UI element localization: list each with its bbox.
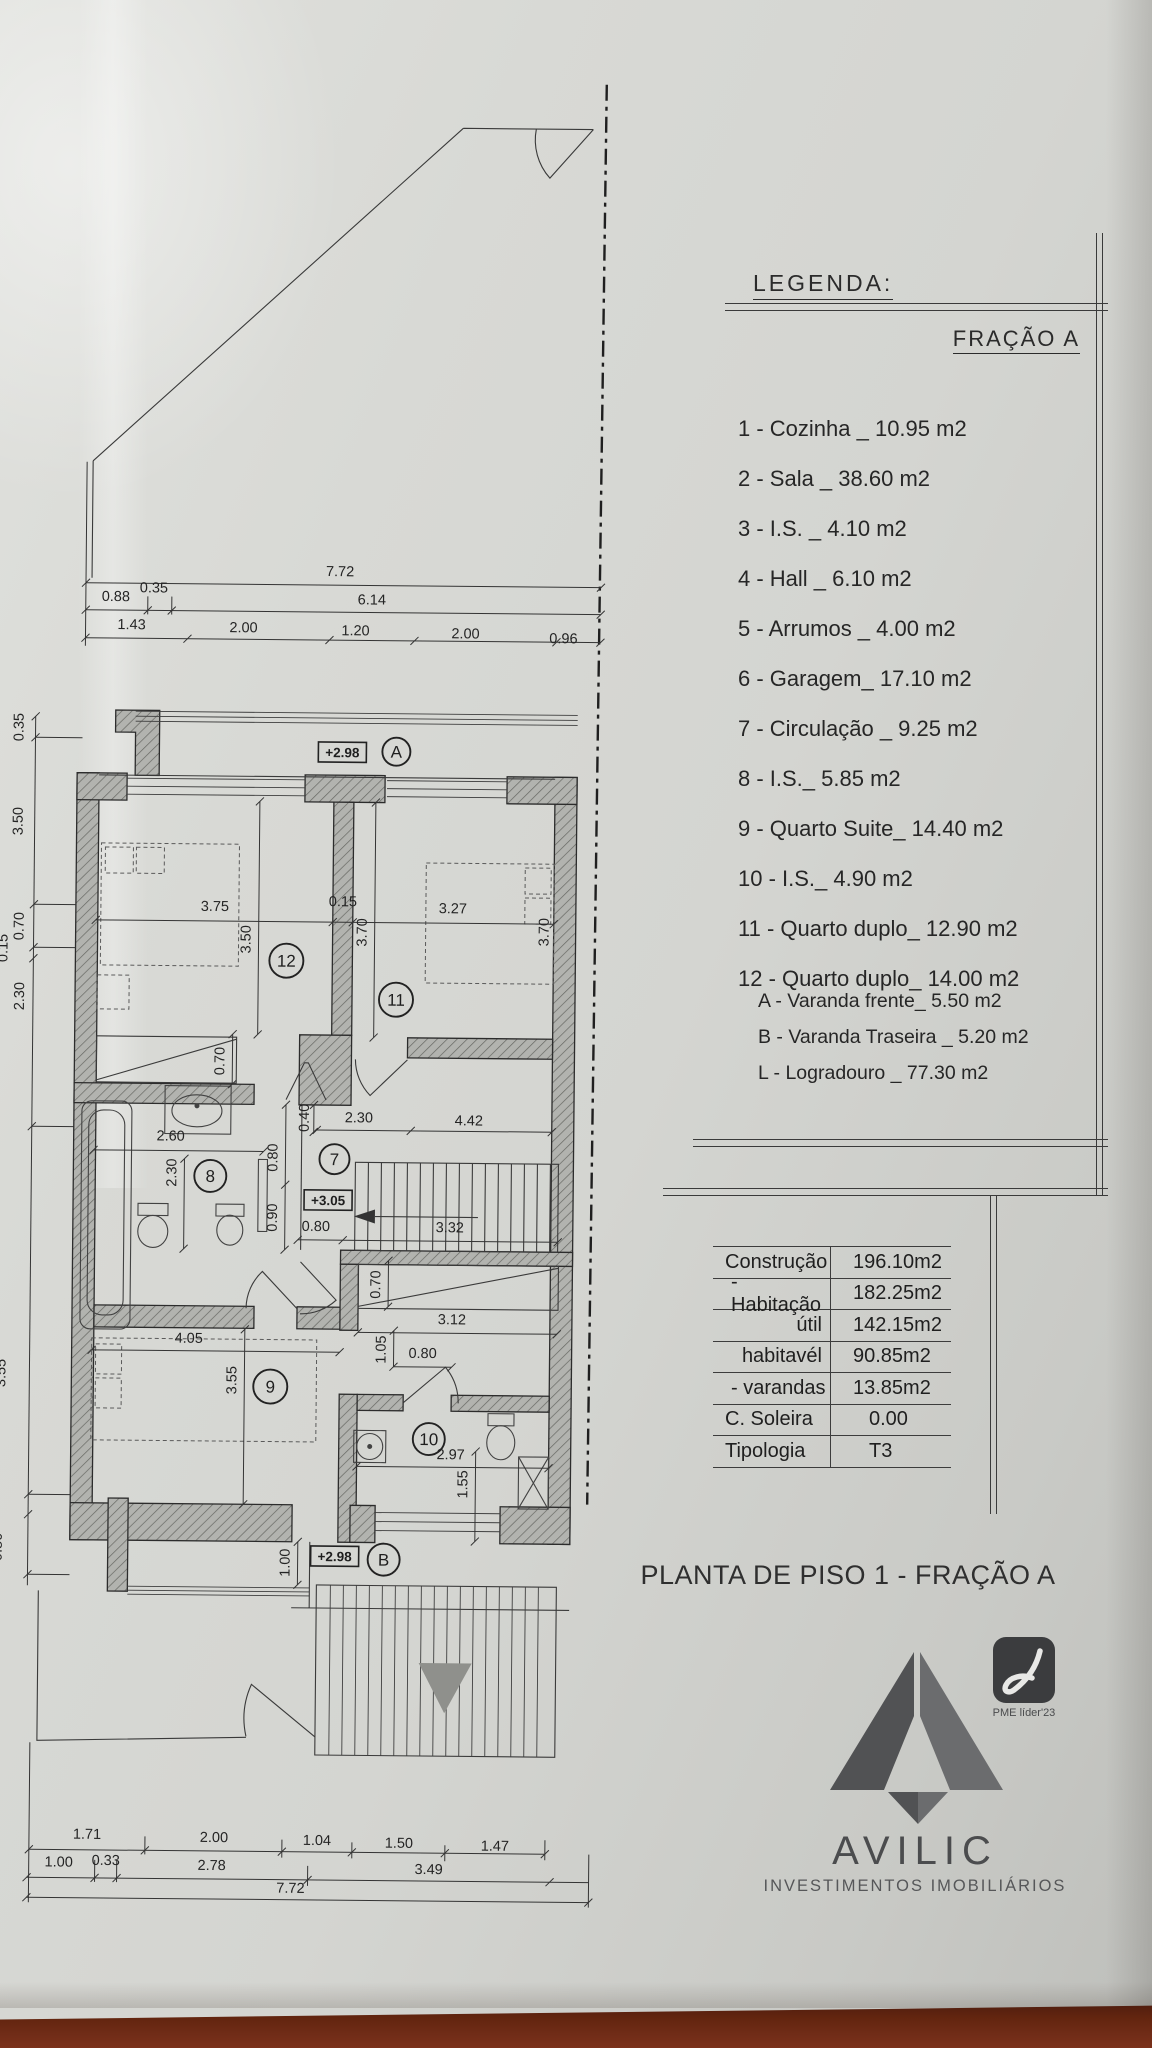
bidet-room8 (216, 1204, 244, 1245)
dimension-label: 3.50 (238, 925, 254, 953)
dimension-label: 0.70 (212, 1047, 228, 1075)
logo-tagline: INVESTIMENTOS IMOBILIÁRIOS (764, 1876, 1067, 1895)
logo-small-triangle-right (918, 1792, 948, 1824)
dimension-label: 0.40 (297, 1104, 313, 1132)
toilet-room10 (487, 1414, 515, 1460)
areas-table: Construção 196.10m2 - Habitação 182.25m2… (713, 1246, 951, 1468)
legend-item: 5 - Arrumos _ 4.00 m2 (738, 616, 1019, 642)
legend-item: 8 - I.S._ 5.85 m2 (738, 766, 1019, 792)
legend-sub-item: L - Logradouro _ 77.30 m2 (758, 1062, 1029, 1085)
legend-right-border (1096, 233, 1103, 1195)
legend-sub-item: A - Varanda frente_ 5.50 m2 (758, 990, 1029, 1013)
property-dashed-line (587, 85, 607, 1505)
dimension-lines (20, 461, 606, 1907)
stair-direction-arrow (354, 1209, 375, 1223)
dimension-label: 2.30 (12, 982, 28, 1010)
dimension-label: 3.27 (439, 901, 467, 917)
dimension-label: 0.80 (408, 1346, 436, 1362)
walls (69, 710, 577, 1596)
legend-sub-item: B - Varanda Traseira _ 5.20 m2 (758, 1026, 1029, 1049)
legend-item: 4 - Hall _ 6.10 m2 (738, 566, 1019, 592)
dimension-label: 1.00 (277, 1549, 293, 1577)
table-row: - Habitação 182.25m2 (713, 1279, 951, 1311)
balcony-b-rail (127, 1586, 309, 1596)
dimension-label: 2.30 (164, 1158, 180, 1186)
table-row: habitavél 90.85m2 (713, 1342, 951, 1374)
dimension-label: 2.00 (229, 620, 257, 636)
dimension-label: 7.72 (326, 564, 354, 580)
sink-room10 (354, 1430, 386, 1462)
yard-door-swing (244, 1684, 316, 1737)
toilet-room8 (138, 1203, 168, 1247)
dimension-label: 3.49 (414, 1862, 442, 1878)
dimension-label: 3.75 (201, 899, 229, 915)
room-marker-label: 9 (265, 1377, 275, 1396)
dimension-label: 0.70 (12, 912, 28, 940)
dimension-label: 0.70 (368, 1270, 384, 1298)
legend-item: 10 - I.S._ 4.90 m2 (738, 866, 1019, 892)
dimension-label: 1.00 (45, 1854, 73, 1870)
dimension-label: 0.80 (302, 1219, 330, 1235)
exterior-stairs (315, 1585, 557, 1757)
dimension-label: 1.71 (73, 1827, 101, 1843)
fraction-title: FRAÇÃO A (880, 326, 1080, 352)
room-marker-label: 7 (330, 1150, 340, 1169)
dimension-label: 2.78 (197, 1858, 225, 1874)
legend-item: 2 - Sala _ 38.60 m2 (738, 466, 1019, 492)
elevation-marker-label: +2.98 (325, 745, 360, 760)
logo-wordmark: AVILIC (832, 1829, 998, 1873)
site-boundary (92, 125, 593, 583)
table-row: Tipologia T3 (713, 1436, 951, 1468)
table-row: útil 142.15m2 (713, 1310, 951, 1342)
dimension-label: 1.55 (455, 1470, 471, 1498)
dimension-label: 3.50 (11, 807, 27, 835)
dimension-label: 0.33 (92, 1853, 120, 1869)
table-row: - varandas 13.85m2 (713, 1373, 951, 1405)
site-gate-door-swing (535, 129, 593, 179)
pme-lider-badge: PME líder'23 (993, 1637, 1056, 1719)
dimension-label: 2.00 (200, 1830, 228, 1846)
double-rule-mid-2 (663, 1188, 1108, 1196)
shower-room10 (518, 1457, 548, 1509)
dimension-label: 1.04 (303, 1833, 331, 1849)
dimension-label: 0.35 (140, 580, 168, 596)
double-rule-mid-1 (693, 1139, 1108, 1147)
elevation-marker-label: +2.98 (318, 1549, 353, 1564)
dimension-label: 0.80 (0, 1533, 6, 1561)
dimension-label: 0.96 (549, 631, 577, 647)
legend-sub-list: A - Varanda frente_ 5.50 m2 B - Varanda … (758, 990, 1029, 1085)
bed-room9 (91, 1338, 317, 1442)
legend-item: 6 - Garagem_ 17.10 m2 (738, 666, 1019, 692)
legend-item: 7 - Circulação _ 9.25 m2 (738, 716, 1019, 742)
table-row: C. Soleira 0.00 (713, 1405, 951, 1437)
dimension-label: 2.60 (156, 1128, 184, 1144)
balcony-a-rail (136, 711, 578, 725)
dimension-label: 0.90 (265, 1203, 281, 1231)
photographed-floorplan-page: { "legend": { "heading": "LEGENDA:", "fr… (0, 0, 1152, 2048)
legend-list: 1 - Cozinha _ 10.95 m2 2 - Sala _ 38.60 … (738, 416, 1019, 992)
legend-item: 12 - Quarto duplo_ 14.00 m2 (738, 966, 1019, 992)
dimension-label: 1.05 (374, 1335, 390, 1363)
logo-triangle-right (920, 1652, 1003, 1790)
dimension-label: 2.30 (345, 1110, 373, 1126)
dimension-label: 3.12 (438, 1312, 466, 1328)
plan-title: PLANTA DE PISO 1 - FRAÇÃO A (636, 1560, 1060, 1591)
room-marker-label: 10 (419, 1430, 438, 1449)
room-marker-label: A (391, 743, 403, 762)
legend-item: 11 - Quarto duplo_ 12.90 m2 (738, 916, 1019, 942)
dimension-label: 1.50 (385, 1836, 413, 1852)
dimension-label: 3.55 (0, 1359, 10, 1387)
down-direction-triangle (418, 1663, 471, 1714)
dimension-label: 3.70 (537, 918, 553, 946)
dimension-label: 0.35 (11, 713, 27, 741)
dimension-label: 1.20 (341, 623, 369, 639)
room-marker-label: 8 (205, 1167, 215, 1186)
dimension-label: 4.05 (175, 1331, 203, 1347)
dimension-label: 6.14 (358, 592, 386, 608)
pme-badge-label: PME líder'23 (993, 1707, 1056, 1719)
legend-item: 3 - I.S. _ 4.10 m2 (738, 516, 1019, 542)
dimension-label: 3.32 (436, 1220, 464, 1236)
plan-drawing: 7.720.880.356.141.432.001.202.000.960.35… (0, 79, 610, 1908)
logo-triangle-left (830, 1652, 914, 1790)
dimension-label: 1.43 (117, 617, 145, 633)
dimension-label: 7.72 (276, 1881, 304, 1897)
legend-item: 9 - Quarto Suite_ 14.40 m2 (738, 816, 1019, 842)
room-marker-label: 11 (387, 991, 405, 1010)
dimension-label: 3.55 (224, 1366, 240, 1394)
logo-small-triangle-left (888, 1792, 918, 1824)
dimension-label: 4.42 (455, 1113, 483, 1129)
elevation-marker-label: +3.05 (311, 1193, 346, 1208)
legend-item: 1 - Cozinha _ 10.95 m2 (738, 416, 1019, 442)
dimension-label: 1.47 (481, 1839, 509, 1855)
yard-boundary (37, 1590, 247, 1742)
dimension-label: 0.80 (265, 1143, 281, 1171)
double-rule-top (725, 303, 1108, 311)
table-right-border (990, 1196, 997, 1514)
dimension-label: 3.70 (355, 918, 371, 946)
dimension-label: 0.15 (0, 934, 12, 962)
legend-heading: LEGENDA: (753, 270, 893, 300)
room-marker-label: B (378, 1551, 390, 1570)
dimension-label: 0.88 (102, 589, 130, 605)
room-marker-label: 12 (277, 952, 296, 971)
dimension-label: 0.15 (329, 894, 357, 910)
dimension-label: 2.00 (451, 626, 479, 642)
